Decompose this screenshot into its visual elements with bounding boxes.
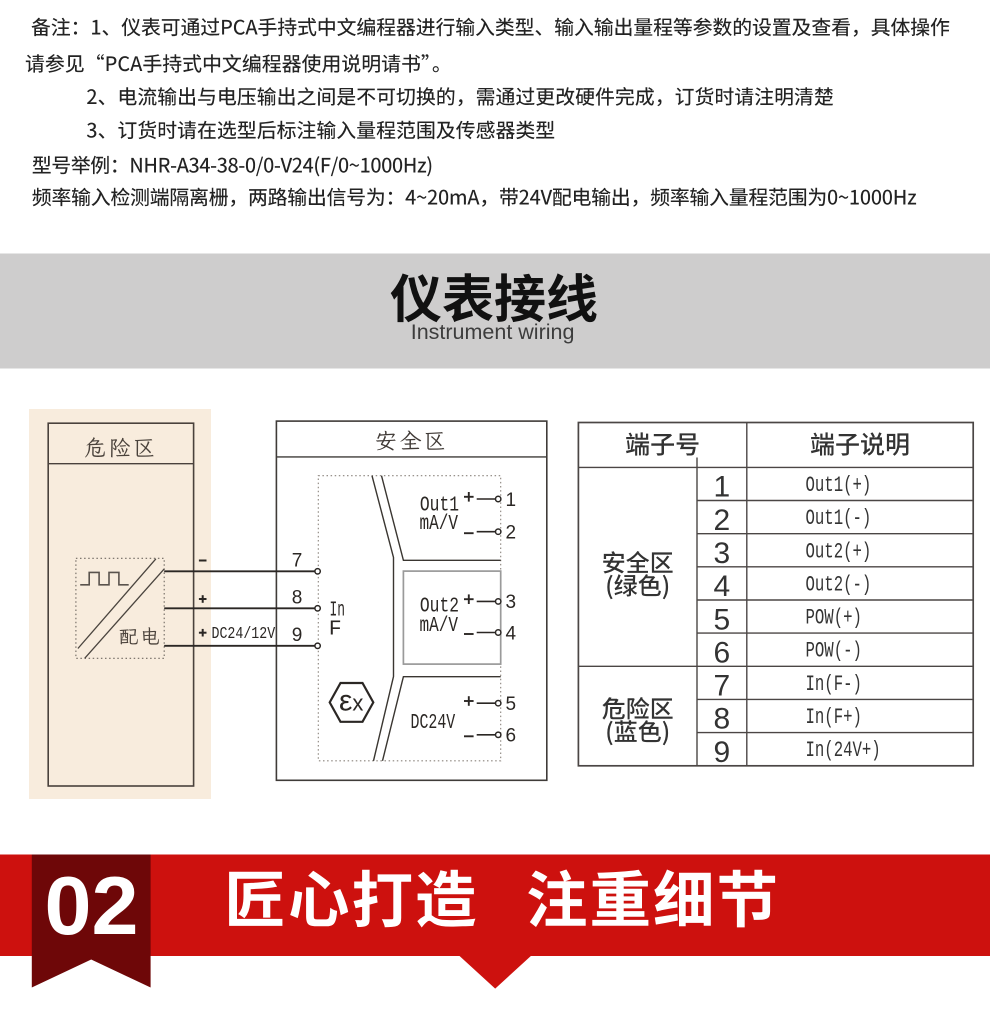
svg-text:mA/V: mA/V — [420, 512, 459, 536]
svg-text:8: 8 — [292, 587, 303, 608]
svg-text:3: 3 — [506, 592, 517, 613]
svg-text:8: 8 — [714, 703, 731, 736]
svg-text:6: 6 — [506, 726, 517, 747]
svg-text:6: 6 — [714, 636, 731, 669]
svg-text:7: 7 — [714, 670, 731, 703]
svg-text:3: 3 — [714, 537, 731, 570]
svg-text:2: 2 — [714, 504, 731, 537]
svg-text:2: 2 — [506, 523, 517, 544]
svg-text:DC24V: DC24V — [411, 711, 456, 735]
svg-text:POW(+): POW(+) — [806, 606, 862, 631]
svg-text:Out2(+): Out2(+) — [806, 539, 872, 564]
svg-text:F: F — [329, 618, 342, 642]
svg-text:02: 02 — [45, 859, 139, 952]
svg-text:In(F-): In(F-) — [806, 672, 862, 697]
svg-text:In(F+): In(F+) — [806, 705, 862, 730]
svg-text:9: 9 — [714, 736, 731, 769]
svg-text:Instrument wiring: Instrument wiring — [411, 320, 575, 344]
svg-text:Out2(-): Out2(-) — [806, 572, 872, 597]
svg-text:9: 9 — [292, 625, 303, 646]
svg-text:1: 1 — [714, 471, 731, 504]
svg-text:DC24/12V: DC24/12V — [212, 625, 276, 644]
svg-text:4: 4 — [714, 570, 731, 603]
svg-text:In(24V+): In(24V+) — [806, 738, 881, 763]
svg-text:7: 7 — [292, 550, 303, 571]
svg-text:POW(-): POW(-) — [806, 639, 862, 664]
svg-text:5: 5 — [714, 603, 731, 636]
svg-text:4: 4 — [506, 623, 517, 644]
svg-text:mA/V: mA/V — [420, 614, 459, 638]
svg-text:1: 1 — [506, 490, 517, 511]
svg-text:Out1(+): Out1(+) — [806, 473, 872, 498]
svg-text:Out1(-): Out1(-) — [806, 506, 872, 531]
svg-text:5: 5 — [506, 694, 517, 715]
